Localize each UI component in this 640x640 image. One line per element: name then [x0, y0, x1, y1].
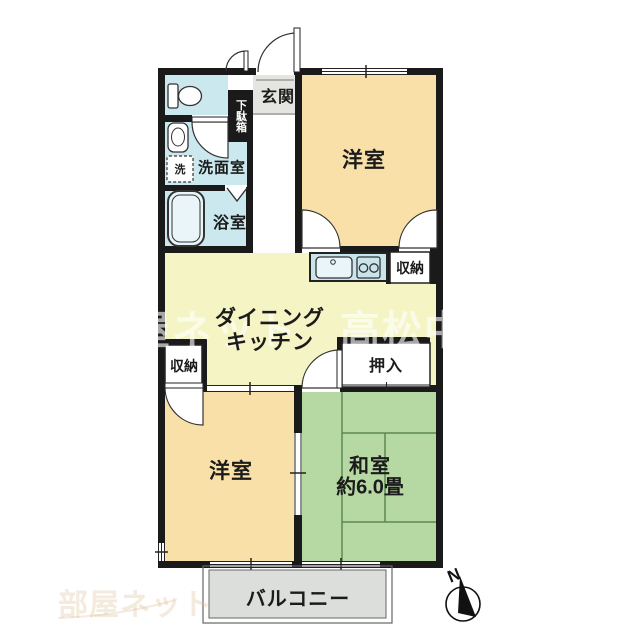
- label-balcony: バルコニー: [246, 583, 351, 612]
- label-getabako: 下駄箱: [235, 100, 246, 133]
- washbasin-icon: [168, 123, 188, 152]
- label-dk-line2: キッチン: [226, 326, 314, 356]
- label-shuno-kitchen: 収納: [396, 258, 424, 278]
- label-senmenshitsu: 洗面室: [198, 157, 246, 178]
- corner-logo: 部屋ネット: [58, 580, 213, 624]
- entrance-door-arc: [258, 33, 297, 72]
- label-yoshitsu-bottom: 洋室: [209, 455, 253, 485]
- entrance-door-leaf: [294, 28, 300, 72]
- label-genkan: 玄関: [261, 83, 295, 107]
- label-yoshitsu-top: 洋室: [342, 144, 386, 174]
- label-yokushitsu: 浴室: [213, 209, 247, 233]
- label-laundry: 洗: [175, 161, 186, 177]
- floorplan-canvas: 屋ネット 高松中央 部屋ネット 玄関 下駄箱 洗面室 洗 浴室 洋室 収納 ダイ…: [0, 0, 640, 640]
- label-oshiire: 押入: [369, 352, 403, 376]
- watermark-right: 高松中央: [340, 298, 452, 356]
- stove-icon: [357, 257, 380, 278]
- toilet-bowl-icon: [179, 87, 202, 106]
- label-washitsu-size: 約6.0畳: [336, 471, 404, 500]
- toilet-tank-icon: [168, 84, 178, 108]
- entrance-small-door-leaf: [244, 51, 248, 71]
- label-shuno-left: 収納: [170, 356, 198, 376]
